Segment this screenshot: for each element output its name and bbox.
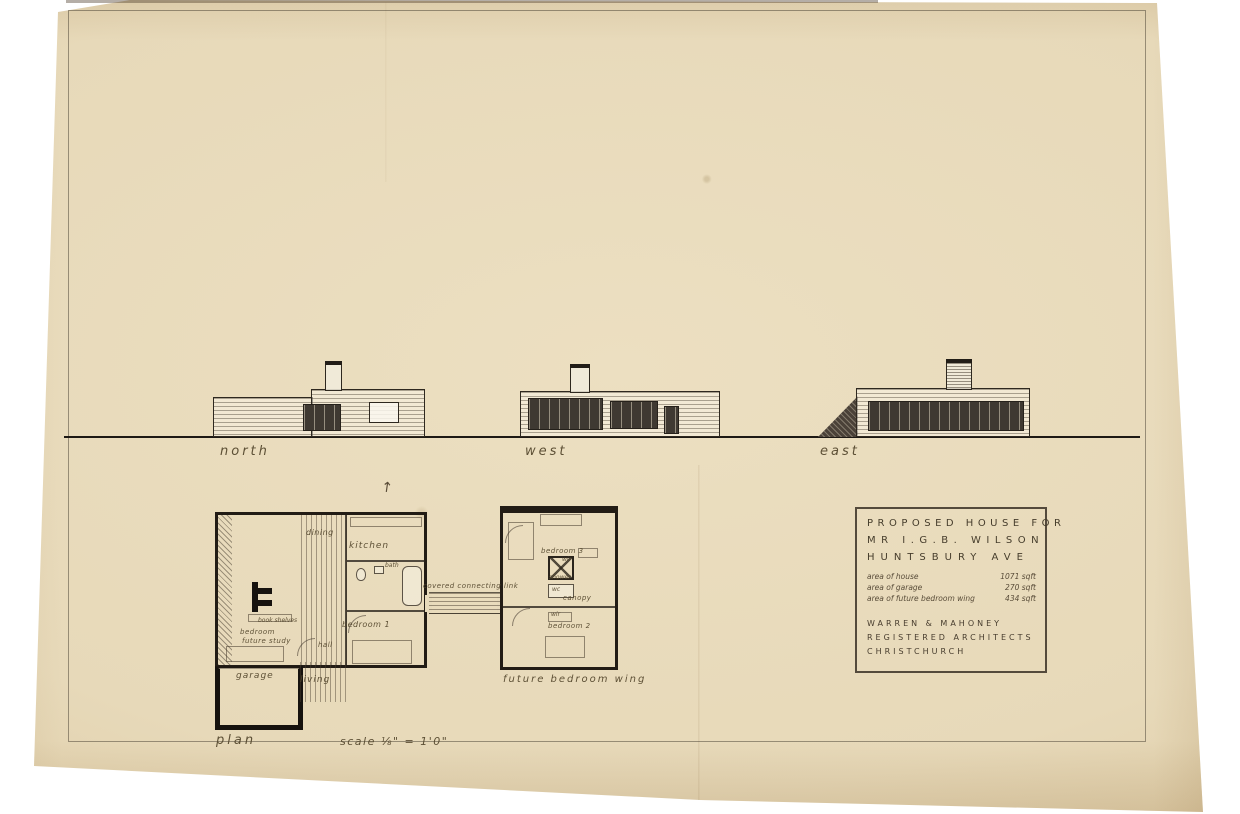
area-row-future-wing: area of future bedroom wing 434 sqft <box>867 594 1036 605</box>
label-shower: shower <box>549 574 571 581</box>
plan-basin <box>374 566 384 574</box>
area-label: area of garage <box>867 583 922 594</box>
title-project-line1: PROPOSED HOUSE FOR <box>867 518 1036 529</box>
plan-study-furniture <box>226 646 284 662</box>
plan-covered-link <box>429 592 501 614</box>
label-wc: wc <box>552 586 560 593</box>
west-elevation-window-dark-2 <box>610 401 658 429</box>
firm-city: CHRISTCHURCH <box>867 647 1036 656</box>
plan-wall-bath-bedroom1 <box>347 610 425 612</box>
area-row-house: area of house 1071 sqft <box>867 572 1036 583</box>
label-dining: dining <box>306 528 334 537</box>
plan-bedroom2-bed <box>545 636 585 658</box>
label-bedroom1: bedroom 1 <box>342 620 390 629</box>
north-elevation-label: north <box>220 444 270 459</box>
plan-wing-closet <box>540 514 582 526</box>
plan-wall-wing-middle <box>503 606 615 608</box>
label-wir-bedroom3: wir <box>562 556 571 563</box>
firm-title: REGISTERED ARCHITECTS <box>867 633 1036 642</box>
east-elevation-chimney <box>946 359 972 390</box>
north-elevation-chimney <box>325 361 342 391</box>
area-value: 1071 sqft <box>1000 572 1036 583</box>
area-label: area of house <box>867 572 919 583</box>
area-value: 270 sqft <box>1005 583 1036 594</box>
area-value: 434 sqft <box>1005 594 1036 605</box>
firm-name: WARREN & MAHONEY <box>867 619 1036 628</box>
plan-toilet <box>356 568 366 581</box>
title-block: PROPOSED HOUSE FOR MR I.G.B. WILSON HUNT… <box>855 507 1047 673</box>
north-arrow-icon: ↑ <box>380 479 394 496</box>
area-label: area of future bedroom wing <box>867 594 975 605</box>
label-garage: garage <box>236 671 274 681</box>
plan-fireplace <box>252 582 258 612</box>
north-elevation-body-left <box>213 397 313 437</box>
title-project-line2: MR I.G.B. WILSON <box>867 535 1036 546</box>
west-elevation-chimney <box>570 364 590 393</box>
label-bedroom-future-study: bedroom <box>240 628 275 636</box>
west-elevation-window-dark <box>528 398 603 430</box>
label-canopy: canopy <box>563 594 591 602</box>
east-elevation-label: east <box>820 444 860 459</box>
north-elevation-window-dark <box>303 404 341 431</box>
label-living: living <box>300 675 330 685</box>
plan-west-wall-hatch <box>218 515 232 665</box>
plan-wall-kitchen <box>345 515 347 665</box>
label-bedroom2: bedroom 2 <box>548 622 591 630</box>
title-project-line3: HUNTSBURY AVE <box>867 552 1036 563</box>
plan-caption: plan <box>216 733 256 748</box>
plan-bedroom1-wardrobe <box>352 640 412 664</box>
west-elevation-door <box>664 406 679 434</box>
scanned-architectural-drawing: north west east ↑ dining kitchen <box>0 0 1240 814</box>
east-elevation-window-dark <box>868 401 1024 431</box>
label-future-study: future study <box>242 637 291 645</box>
plan-fireplace <box>258 600 272 606</box>
plan-kitchen-bench <box>350 517 422 527</box>
area-row-garage: area of garage 270 sqft <box>867 583 1036 594</box>
paper-torn-edge <box>66 0 878 3</box>
north-elevation-window <box>369 402 399 423</box>
plan-fireplace <box>258 588 272 594</box>
label-kitchen: kitchen <box>349 541 389 551</box>
label-future-bedroom-wing: future bedroom wing <box>503 674 646 685</box>
label-wir-bedroom2: wir <box>551 611 560 618</box>
label-covered-link: covered connecting link <box>423 582 518 590</box>
label-book-shelves: book shelves <box>258 617 297 624</box>
label-hall: hall <box>318 641 333 649</box>
west-elevation-label: west <box>525 444 568 459</box>
plan-bathtub <box>402 566 422 606</box>
label-bath: bath <box>385 562 399 569</box>
label-bedroom3: bedroom 3 <box>541 547 584 555</box>
plan-scale-note: scale ⅛" = 1'0" <box>340 735 448 748</box>
